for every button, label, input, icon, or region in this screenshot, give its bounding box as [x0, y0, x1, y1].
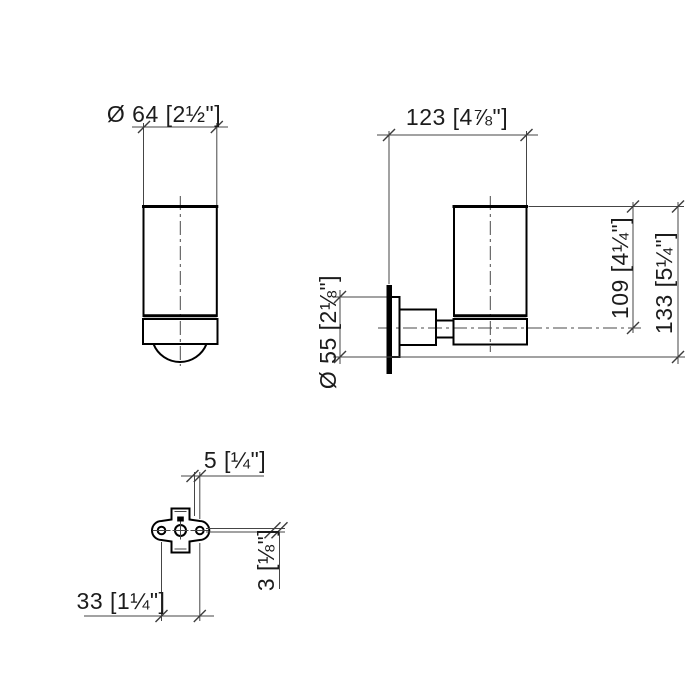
drawing-svg: Ø 64 [2½"] 123 [4⅞"]	[0, 0, 700, 700]
dim-glass-diameter: Ø 64 [2½"]	[107, 101, 228, 205]
set-screw-mark	[177, 517, 184, 522]
dim-label-overall-height: 133 [5¼"]	[651, 232, 677, 334]
side-view: 123 [4⅞"] 109 [4¼"] 133 [5¼"] Ø 55 [2⅛"]	[315, 104, 685, 389]
dim-label-top-offset: 5 [¼"]	[204, 447, 266, 473]
dim-hole-spacing: 33 [1¼"]	[77, 542, 214, 622]
dim-label-depth: 123 [4⅞"]	[406, 104, 508, 130]
dim-label-glass-diameter: Ø 64 [2½"]	[107, 101, 221, 127]
dim-depth: 123 [4⅞"]	[377, 104, 538, 284]
dim-label-hole-spacing: 33 [1¼"]	[77, 588, 166, 614]
dim-rosette-diameter: Ø 55 [2⅛"]	[315, 275, 387, 389]
technical-drawing-sheet: Ø 64 [2½"] 123 [4⅞"]	[0, 0, 700, 700]
dim-label-side-offset: 3 [⅛"]	[253, 529, 279, 591]
wall-plate-bar	[387, 285, 393, 374]
dim-top-offset: 5 [¼"]	[181, 447, 266, 519]
plate-view: 5 [¼"] 3 [⅛"] 33 [1¼"]	[77, 447, 288, 622]
dim-label-height-to-axis: 109 [4¼"]	[607, 217, 633, 319]
dim-heights: 109 [4¼"] 133 [5¼"]	[333, 201, 685, 365]
dim-side-offset: 3 [⅛"]	[206, 522, 288, 591]
dim-label-rosette-diameter: Ø 55 [2⅛"]	[315, 275, 341, 389]
bracket-body	[400, 310, 437, 346]
front-view: Ø 64 [2½"]	[107, 101, 228, 366]
